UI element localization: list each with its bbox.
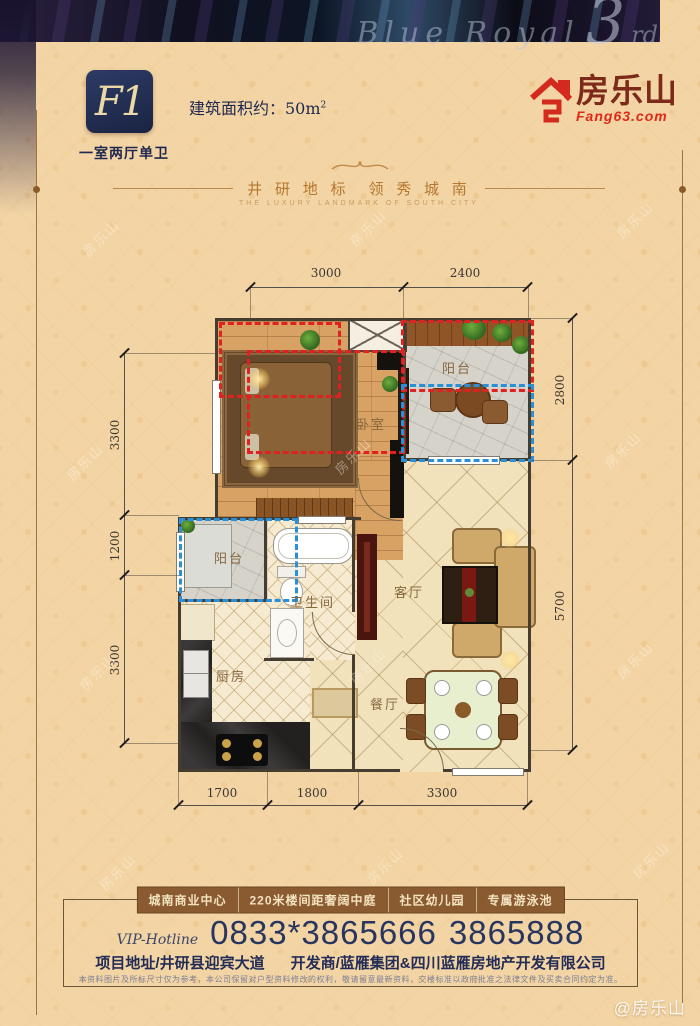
room-label-bathroom: 卫生间	[290, 592, 335, 611]
ext-line	[358, 772, 359, 805]
ext-line	[531, 460, 572, 461]
gift-area-blue-balcony	[401, 384, 534, 462]
dim-top-1: 3000	[296, 266, 356, 280]
feature-banner: 城南商业中心 220米楼间距奢阔中庭 社区幼儿园 专属游泳池	[136, 887, 564, 914]
divider: 井 研 地 标 领 秀 城 南	[36, 178, 682, 199]
gift-area-red-balcony	[401, 320, 534, 392]
ext-line	[531, 318, 572, 319]
kitchen-sink-divider	[184, 673, 208, 674]
brand-name: 房乐山	[576, 74, 678, 108]
divider-ornament-icon	[330, 158, 390, 172]
divider-title: 井 研 地 标 领 秀 城 南	[247, 178, 471, 199]
dim-right-1: 2800	[553, 360, 567, 420]
area-label: 建筑面积约：50m2	[189, 95, 326, 119]
plate-4	[476, 724, 492, 740]
watermark: 房乐山	[78, 215, 123, 260]
dining-chair-4	[498, 714, 518, 740]
phone-number-2: 3865888	[449, 914, 584, 952]
room-label-balcony-left: 阳台	[214, 548, 244, 567]
unit-code: F1	[95, 79, 144, 125]
burner-4	[253, 752, 262, 761]
watermark: 房乐山	[612, 637, 657, 682]
room-label-dining: 餐厅	[370, 694, 400, 713]
feature-item-4: 专属游泳池	[476, 888, 564, 913]
dim-line-top	[250, 287, 528, 288]
table-flowers	[465, 588, 474, 597]
burner-2	[253, 739, 262, 748]
tv-cabinet	[357, 534, 377, 640]
ext-line	[267, 772, 268, 805]
wall-bottom-left	[178, 769, 400, 772]
watermark: 房乐山	[345, 205, 390, 250]
poster: Blue Royal 3 rd F1 一室两厅单卫 建筑面积约：50m2 房乐山…	[0, 0, 700, 1026]
watermark: 房乐山	[362, 843, 407, 888]
divider-line-right	[485, 188, 605, 189]
bathroom-sink	[270, 608, 304, 658]
living-lamp-2	[500, 650, 520, 670]
dim-line-left	[124, 353, 125, 743]
feature-item-3: 社区幼儿园	[388, 888, 476, 913]
area-text: 建筑面积约：50m	[189, 99, 321, 118]
feature-item-1: 城南商业中心	[137, 888, 237, 913]
ext-line	[403, 287, 404, 319]
burner-1	[222, 739, 231, 748]
address-row: 项目地址/井研县迎宾大道 开发商/蓝雁集团&四川蓝雁房地产开发有限公司	[64, 952, 637, 973]
dim-top-2: 2400	[435, 266, 495, 280]
ext-line	[527, 772, 528, 805]
sink-basin	[277, 619, 297, 647]
ext-line	[178, 772, 179, 805]
phone-row: VIP-Hotline 0833*3865666 3865888	[64, 914, 637, 952]
dining-chair-3	[498, 678, 518, 704]
area-sup: 2	[321, 101, 327, 111]
contact-box: 城南商业中心 220米楼间距奢阔中庭 社区幼儿园 专属游泳池 VIP-Hotli…	[63, 899, 638, 987]
disclaimer: 本资料图片及所标尺寸仅为参考，本公司保留对户型资料修改的权利，敬请留意最新资料，…	[64, 974, 637, 985]
tv-cabinet-inner	[364, 542, 370, 632]
dim-right-2: 5700	[553, 576, 567, 636]
developer: 开发商/蓝雁集团&四川蓝雁房地产开发有限公司	[291, 952, 606, 973]
phone-number-1: 0833*3865666	[210, 914, 437, 952]
wall-bath-right-a	[352, 520, 355, 612]
dim-line-bottom	[178, 805, 527, 806]
dining-chair-1	[406, 678, 426, 704]
brand-site: Fang63.com	[576, 108, 678, 124]
fridge	[180, 604, 215, 641]
ext-line	[124, 743, 179, 744]
ext-line	[528, 287, 529, 319]
dim-bottom-3: 3300	[412, 786, 472, 800]
divider-line-left	[113, 188, 233, 189]
brand-logo: 房乐山 Fang63.com	[528, 74, 678, 130]
watermark: 房乐山	[62, 439, 107, 484]
divider-subtitle: THE LUXURY LANDMARK OF SOUTH CITY	[36, 200, 682, 207]
wall-bath-bottom	[264, 658, 314, 661]
bedside-lamp-2	[248, 456, 270, 478]
armchair-2	[452, 622, 502, 658]
frame-line-right	[682, 150, 683, 1015]
banner-script-suf: rd	[631, 21, 658, 49]
center-dish	[455, 702, 471, 718]
feature-item-2: 220米楼间距奢阔中庭	[237, 888, 387, 913]
burner-3	[222, 752, 231, 761]
window-living	[452, 768, 524, 776]
room-label-bedroom: 卧室	[356, 414, 386, 433]
room-label-kitchen: 厨房	[216, 666, 246, 685]
site-watermark: @房乐山	[614, 994, 686, 1019]
plate-2	[476, 680, 492, 696]
watermark: 房乐山	[600, 427, 645, 472]
coffee-table	[442, 566, 498, 624]
dim-bottom-1: 1700	[192, 786, 252, 800]
plate-1	[434, 680, 450, 696]
ext-line	[124, 515, 179, 516]
room-label-living: 客厅	[394, 582, 424, 601]
kitchen-sink	[183, 650, 209, 698]
window-bathroom	[298, 516, 346, 524]
room-label-balcony-top: 阳台	[442, 358, 472, 377]
dim-bottom-2: 1800	[282, 786, 342, 800]
watermark: 房乐山	[628, 837, 673, 882]
dim-left-1: 3300	[108, 405, 122, 465]
banner-script-title: Blue Royal 3 rd	[356, 0, 658, 51]
ext-line	[124, 353, 216, 354]
banner-script-num: 3	[586, 0, 625, 48]
ext-line	[250, 287, 251, 319]
project-address: 项目地址/井研县迎宾大道	[95, 952, 264, 973]
gift-area-red-bedroom	[247, 350, 405, 454]
shaft-symbol	[348, 318, 407, 352]
dim-left-2: 1200	[108, 516, 122, 576]
left-margin-photo-fade	[0, 0, 36, 215]
ext-line	[124, 575, 179, 576]
dim-line-right	[572, 318, 573, 750]
dining-table	[424, 670, 502, 750]
unit-code-tile: F1	[86, 70, 153, 133]
bedroom-dresser	[256, 498, 353, 518]
stove	[216, 734, 268, 766]
frame-line-left	[36, 110, 37, 1015]
ext-line	[531, 750, 572, 751]
unit-type: 一室两厅单卫	[78, 143, 170, 163]
hotline-label: VIP-Hotline	[117, 932, 199, 948]
watermark: 房乐山	[95, 849, 140, 894]
banner-script-pre: Blue Royal	[356, 16, 579, 51]
house-logo-icon	[528, 74, 572, 130]
living-lamp-1	[500, 528, 520, 548]
plate-3	[434, 724, 450, 740]
